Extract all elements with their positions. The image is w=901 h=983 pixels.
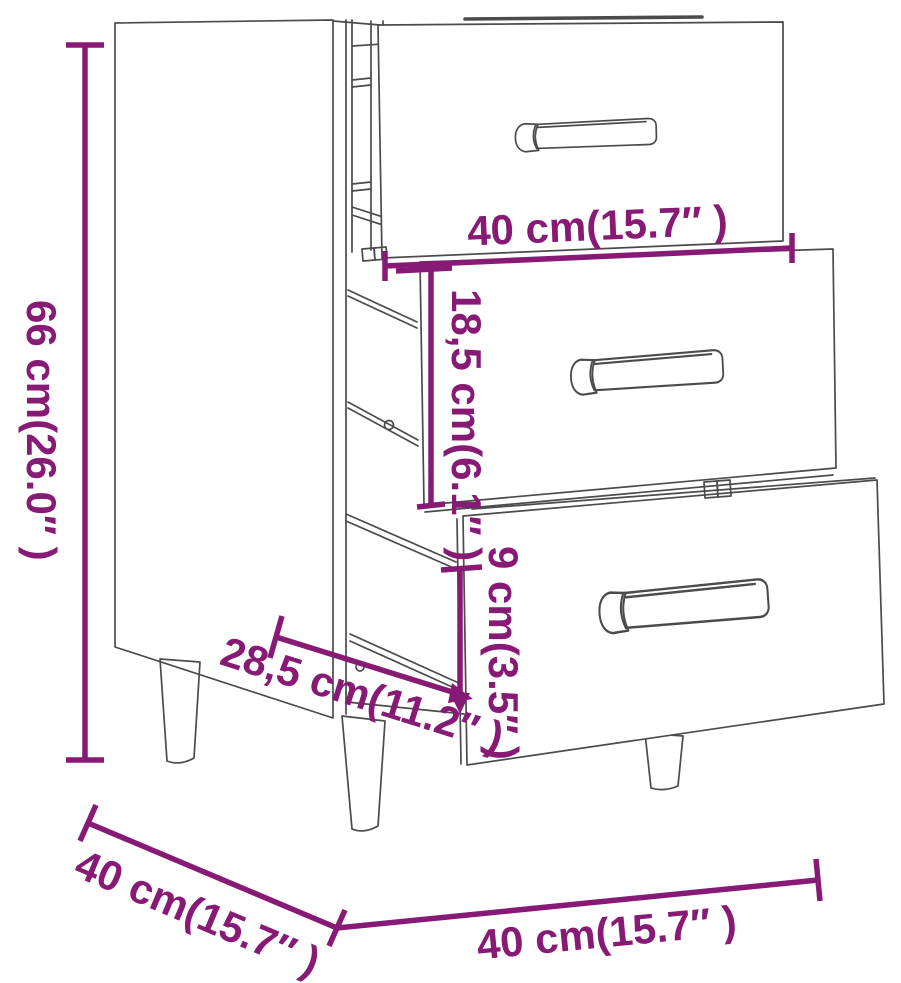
dimension-drawer-width-label: 40 cm(15.7″ )	[466, 196, 728, 254]
dim-cap	[441, 567, 482, 570]
cabinet-top-front-edge	[333, 21, 380, 25]
dim-cap	[816, 859, 820, 901]
cabinet-side-panel	[115, 20, 333, 718]
dimension-middle-drawer-height-label: 18,5 cm(6.1″ )	[443, 289, 490, 561]
cabinet-top-back-edge	[465, 17, 702, 19]
dimension-overall-height	[66, 45, 104, 760]
dim-cap	[417, 504, 445, 507]
cabinet-leg-front-middle	[342, 716, 385, 831]
diagram-canvas: 66 cm(26.0″ ) 40 cm(15.7″ ) 18,5 cm(6.1″…	[0, 0, 901, 983]
dimension-overall-height-label: 66 cm(26.0″ )	[18, 300, 65, 561]
furniture-dimension-diagram: 66 cm(26.0″ ) 40 cm(15.7″ ) 18,5 cm(6.1″…	[0, 0, 901, 983]
cabinet-leg-front-right	[645, 733, 683, 790]
dim-cap	[396, 268, 452, 271]
dimension-overall-depth-label: 40 cm(15.7″ )	[69, 840, 327, 983]
dimension-overall-width-label: 40 cm(15.7″ )	[475, 897, 739, 969]
cabinet-leg-front-left	[160, 659, 200, 763]
rail-connector	[362, 248, 375, 261]
